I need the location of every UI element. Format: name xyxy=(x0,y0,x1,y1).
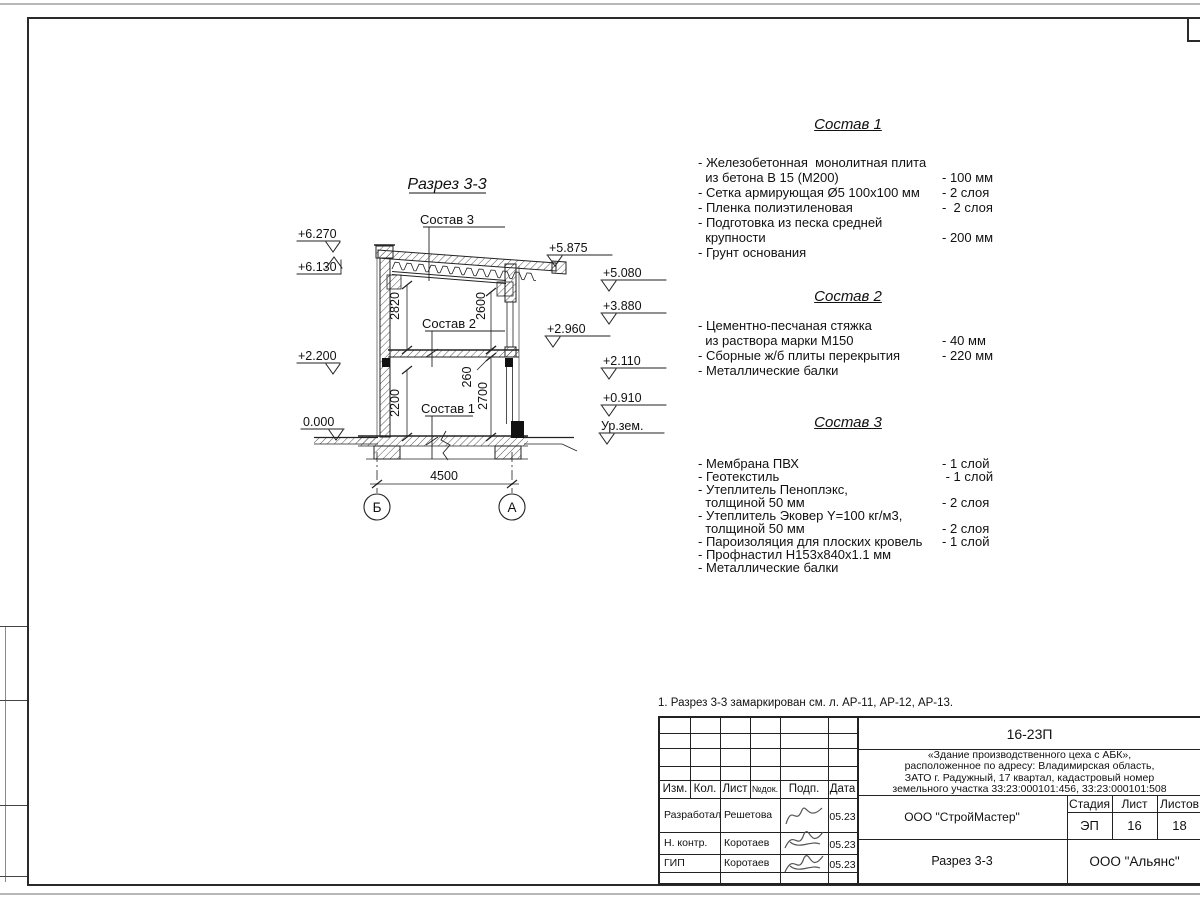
list-item: - Грунт основания xyxy=(698,245,998,260)
row-role-razrabotal: Разработал xyxy=(664,808,720,822)
elev-ground: Ур.зем. xyxy=(601,419,643,433)
dim-260: 260 xyxy=(460,367,474,388)
row-name-razrabotal: Решетова xyxy=(724,808,780,822)
list-item: - Пленка полиэтиленовая- 2 слоя xyxy=(698,200,998,215)
doc-number: 16-23П xyxy=(857,718,1200,749)
composition-leaders: Состав 3 Состав 2 Состав 1 xyxy=(420,212,505,459)
elev-2200: +2.200 xyxy=(298,349,337,363)
title-block: Изм. Кол. Лист №док. Подп. Дата Разработ… xyxy=(658,716,1200,885)
elev-5080: +5.080 xyxy=(603,266,642,280)
elev-0000: 0.000 xyxy=(303,415,334,429)
sheets-label: Листов xyxy=(1157,795,1200,812)
list-item: - Сетка армирующая Ø5 100х100 мм- 2 слоя xyxy=(698,185,998,200)
row-date-razrabotal: 05.23 xyxy=(828,810,857,824)
drawing-sheet: { "drawing": { "title": "Разрез 3-3", "s… xyxy=(0,0,1200,900)
floor-slab xyxy=(388,350,519,357)
elev-5875: +5.875 xyxy=(549,241,588,255)
sostav-2-heading: Состав 2 xyxy=(698,288,998,305)
elev-2960: +2.960 xyxy=(547,322,586,336)
elev-0910: +0.910 xyxy=(603,391,642,405)
elev-6270: +6.270 xyxy=(298,227,337,241)
row-role-nkontr: Н. контр. xyxy=(664,836,720,850)
sheet-bottom-edge xyxy=(0,893,1200,895)
list-item: крупности- 200 мм xyxy=(698,230,998,245)
list-item: - Металлические балки xyxy=(698,363,998,378)
signature-gip xyxy=(782,848,826,878)
col-ndok: №док. xyxy=(750,780,780,798)
elev-2110: +2.110 xyxy=(603,354,641,368)
axes: 4500 Б А xyxy=(364,452,525,520)
sostav-3-heading: Состав 3 xyxy=(698,414,998,431)
dim-2200: 2200 xyxy=(388,389,402,417)
dimensions: 2820 2600 2200 260 2700 xyxy=(388,281,496,441)
list-item: - Металлические балки xyxy=(698,561,998,574)
sheet-value: 16 xyxy=(1112,812,1157,839)
row-name-gip: Коротаев xyxy=(724,856,780,870)
sheet-title: Разрез 3-3 xyxy=(857,839,1067,883)
ground-floor xyxy=(314,421,577,460)
axis-label-a: А xyxy=(507,500,516,515)
sheet-note: 1. Разрез 3-3 замаркирован см. л. АР-11,… xyxy=(658,697,953,709)
stage-label: Стадия xyxy=(1067,795,1112,812)
sostav-3-list: - Мембрана ПВХ- 1 слой- Геотекстиль - 1 … xyxy=(698,457,998,574)
list-item: - Железобетонная монолитная плита xyxy=(698,155,998,170)
label-sostav-3: Состав 3 xyxy=(420,212,474,227)
sostav-2-list: - Цементно-песчаная стяжка из раствора м… xyxy=(698,318,998,378)
dim-2700: 2700 xyxy=(476,382,490,410)
dim-2820: 2820 xyxy=(388,292,402,320)
frame-corner-box xyxy=(1187,17,1200,42)
axis-label-b: Б xyxy=(373,500,382,515)
stage-value: ЭП xyxy=(1067,812,1112,839)
dim-4500: 4500 xyxy=(430,469,458,483)
col-kol: Кол. xyxy=(690,780,720,798)
col-izm: Изм. xyxy=(660,780,690,798)
section-title: Разрез 3-3 xyxy=(407,176,486,193)
col-data: Дата xyxy=(828,780,857,798)
list-item: - Подготовка из песка средней xyxy=(698,215,998,230)
section-drawing: Разрез 3-3 xyxy=(270,150,690,530)
row-date-gip: 05.23 xyxy=(828,858,857,872)
org-name: ООО "СтройМастер" xyxy=(857,795,1067,839)
elev-3880: +3.880 xyxy=(603,299,642,313)
col-podp: Подп. xyxy=(780,780,828,798)
sheet-top-edge xyxy=(0,3,1200,5)
sheet-label: Лист xyxy=(1112,795,1157,812)
project-description: «Здание производственного цеха с АБК», р… xyxy=(857,750,1200,795)
sheets-value: 18 xyxy=(1157,812,1200,839)
roof xyxy=(378,250,566,296)
label-sostav-1: Состав 1 xyxy=(421,401,475,416)
col-list: Лист xyxy=(720,780,750,798)
dim-2600: 2600 xyxy=(474,292,488,320)
company-name: ООО "Альянс" xyxy=(1067,839,1200,883)
list-item: - Цементно-песчаная стяжка xyxy=(698,318,998,333)
side-stamp-line xyxy=(5,626,6,882)
row-name-nkontr: Коротаев xyxy=(724,836,780,850)
sostav-1-heading: Состав 1 xyxy=(698,116,998,133)
sostav-1-list: - Железобетонная монолитная плита из бет… xyxy=(698,155,998,260)
list-item: из раствора марки М150- 40 мм xyxy=(698,333,998,348)
list-item: - Сборные ж/б плиты перекрытия- 220 мм xyxy=(698,348,998,363)
list-item: из бетона В 15 (М200)- 100 мм xyxy=(698,170,998,185)
row-role-gip: ГИП xyxy=(664,856,720,870)
row-date-nkontr: 05.23 xyxy=(828,838,857,852)
label-sostav-2: Состав 2 xyxy=(422,316,476,331)
